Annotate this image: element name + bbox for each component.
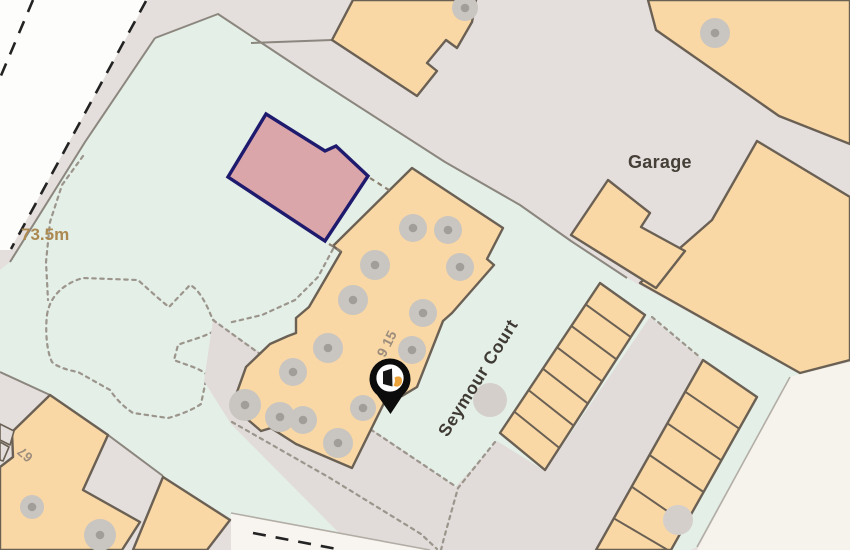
map-canvas[interactable]: Garage Seymour Court 73.5m 67 9 15 [0, 0, 850, 550]
garage-label: Garage [628, 152, 692, 172]
spot-height-label: 73.5m [21, 225, 69, 244]
map: Garage Seymour Court 73.5m 67 9 15 [0, 0, 850, 550]
agency-logo-dark-icon [383, 369, 393, 387]
